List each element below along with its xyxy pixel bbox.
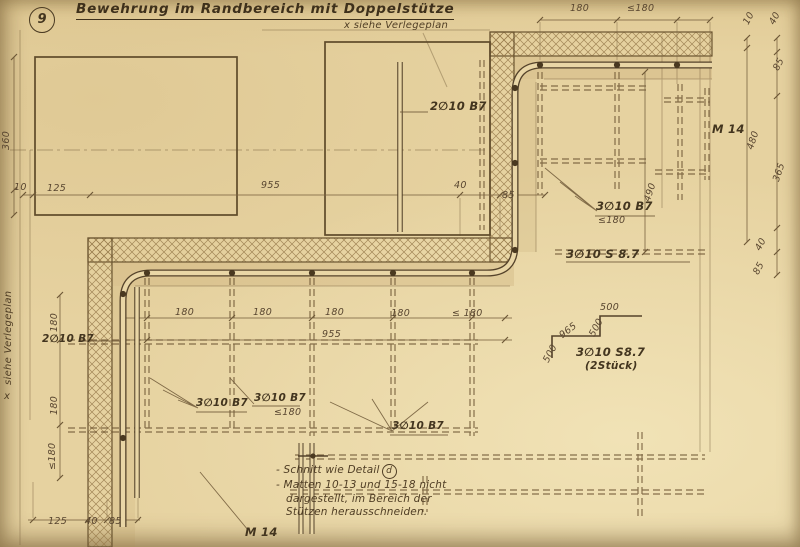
side-note-vertical: siehe Verlegeplan	[4, 291, 14, 385]
drawing-title: Bewehrung im Randbereich mit Doppelstütz…	[76, 3, 454, 20]
bar-label-step-count: (2Stück)	[585, 361, 638, 372]
note-line-3: dargestellt, im Bereich der	[286, 493, 446, 507]
dim-row1-10: 10	[14, 183, 27, 193]
edge-reinforcement-bar	[123, 65, 712, 527]
dim-lcol-180b: 180	[50, 396, 60, 415]
bar-label-right-b7: 3∅10 B7	[596, 201, 653, 213]
dim-row1-85: 85	[502, 191, 515, 201]
dim-bot-125: 125	[48, 517, 67, 527]
top-reference-note: x siehe Verlegeplan	[344, 21, 448, 31]
dim-bot-85: 85	[109, 517, 122, 527]
mat-bars-dashed	[68, 60, 710, 520]
dim-mid-180b: 180	[253, 308, 272, 318]
bar-label-right-s87: 3∅10 S 8.7	[566, 249, 640, 261]
drawing-notes: - Schnitt wie Detaild - Matten 10-13 und…	[276, 464, 446, 520]
detail-number-badge: 9	[29, 7, 55, 33]
bar-label-mid-b7: 3∅10 B7	[392, 421, 444, 432]
bar-label-right-b7-spacing: ≤180	[598, 216, 625, 226]
dim-top-180: 180	[570, 4, 589, 14]
dim-row1-955: 955	[261, 181, 280, 191]
mat-label-m14-bottom: M 14	[245, 527, 278, 539]
blueprint-sheet: 9 Bewehrung im Randbereich mit Doppelstü…	[0, 0, 800, 547]
bar-label-step-s87: 3∅10 S8.7	[576, 347, 645, 359]
dim-mid-180a: 180	[175, 308, 194, 318]
dim-mid-180d: 180	[391, 309, 410, 319]
dim-lcol-le180: ≤180	[48, 443, 58, 470]
dim-mid-le180: ≤ 180	[452, 309, 483, 319]
bar-label-l2-b7: 3∅10 B7	[254, 393, 306, 404]
note-line-1: - Schnitt wie Detaild	[276, 464, 446, 479]
side-note-marker: x	[4, 392, 10, 402]
note-line-2: - Matten 10-13 und 15-18 nicht	[276, 479, 446, 493]
dim-left-360: 360	[2, 131, 12, 150]
detail-d-reference: d	[382, 464, 397, 479]
note-line-4: Stützen herausschneiden.	[286, 506, 446, 520]
bar-label-l1-b7: 3∅10 B7	[196, 398, 248, 409]
dim-lcol-180a: 180	[50, 313, 60, 332]
mat-label-m14-right: M 14	[712, 124, 745, 136]
dim-mid-180c: 180	[325, 308, 344, 318]
dim-row1-40: 40	[454, 181, 467, 191]
dim-mid-955: 955	[322, 330, 341, 340]
column-outlines	[35, 42, 490, 235]
dim-top-le180: ≤180	[627, 4, 654, 14]
dim-step-500a: 500	[600, 303, 619, 313]
bar-label-l2-spacing: ≤180	[274, 408, 301, 418]
dim-bot-40: 40	[85, 517, 98, 527]
bar-label-left-2o10: 2∅10 B7	[42, 334, 94, 345]
dim-row1-125: 125	[47, 184, 66, 194]
bar-label-top-2o10: 2∅10 B7	[430, 101, 487, 113]
